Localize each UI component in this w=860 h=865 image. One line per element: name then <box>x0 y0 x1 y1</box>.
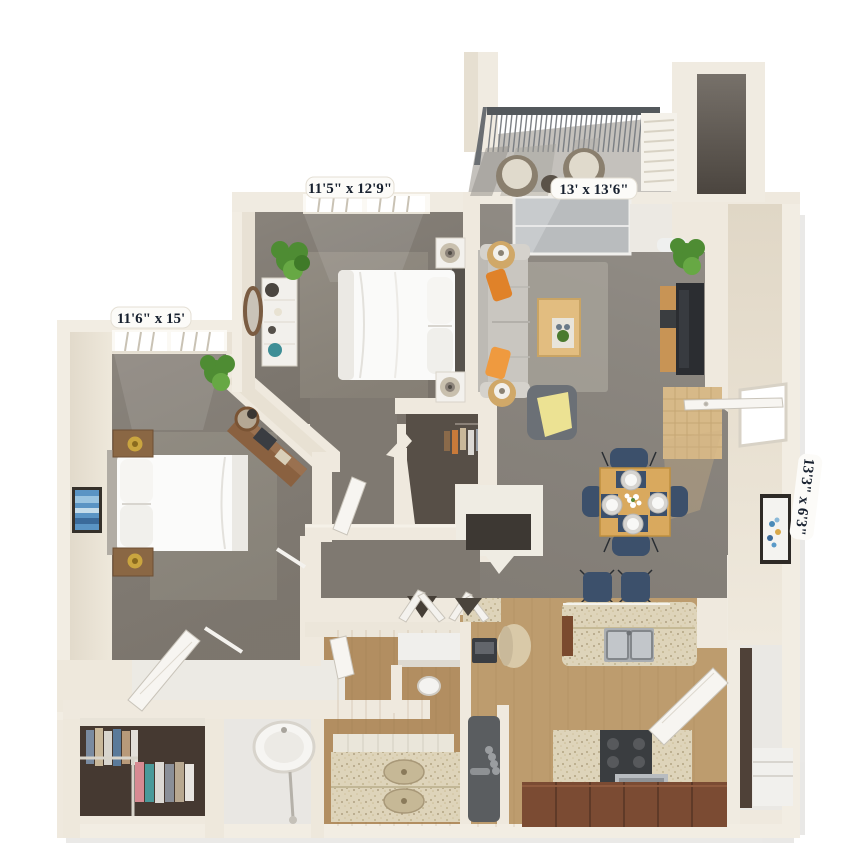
svg-text:13' x 13'6": 13' x 13'6" <box>559 182 628 198</box>
svg-text:11'5" x 12'9": 11'5" x 12'9" <box>308 181 392 197</box>
svg-text:11'6" x 15': 11'6" x 15' <box>117 311 185 327</box>
